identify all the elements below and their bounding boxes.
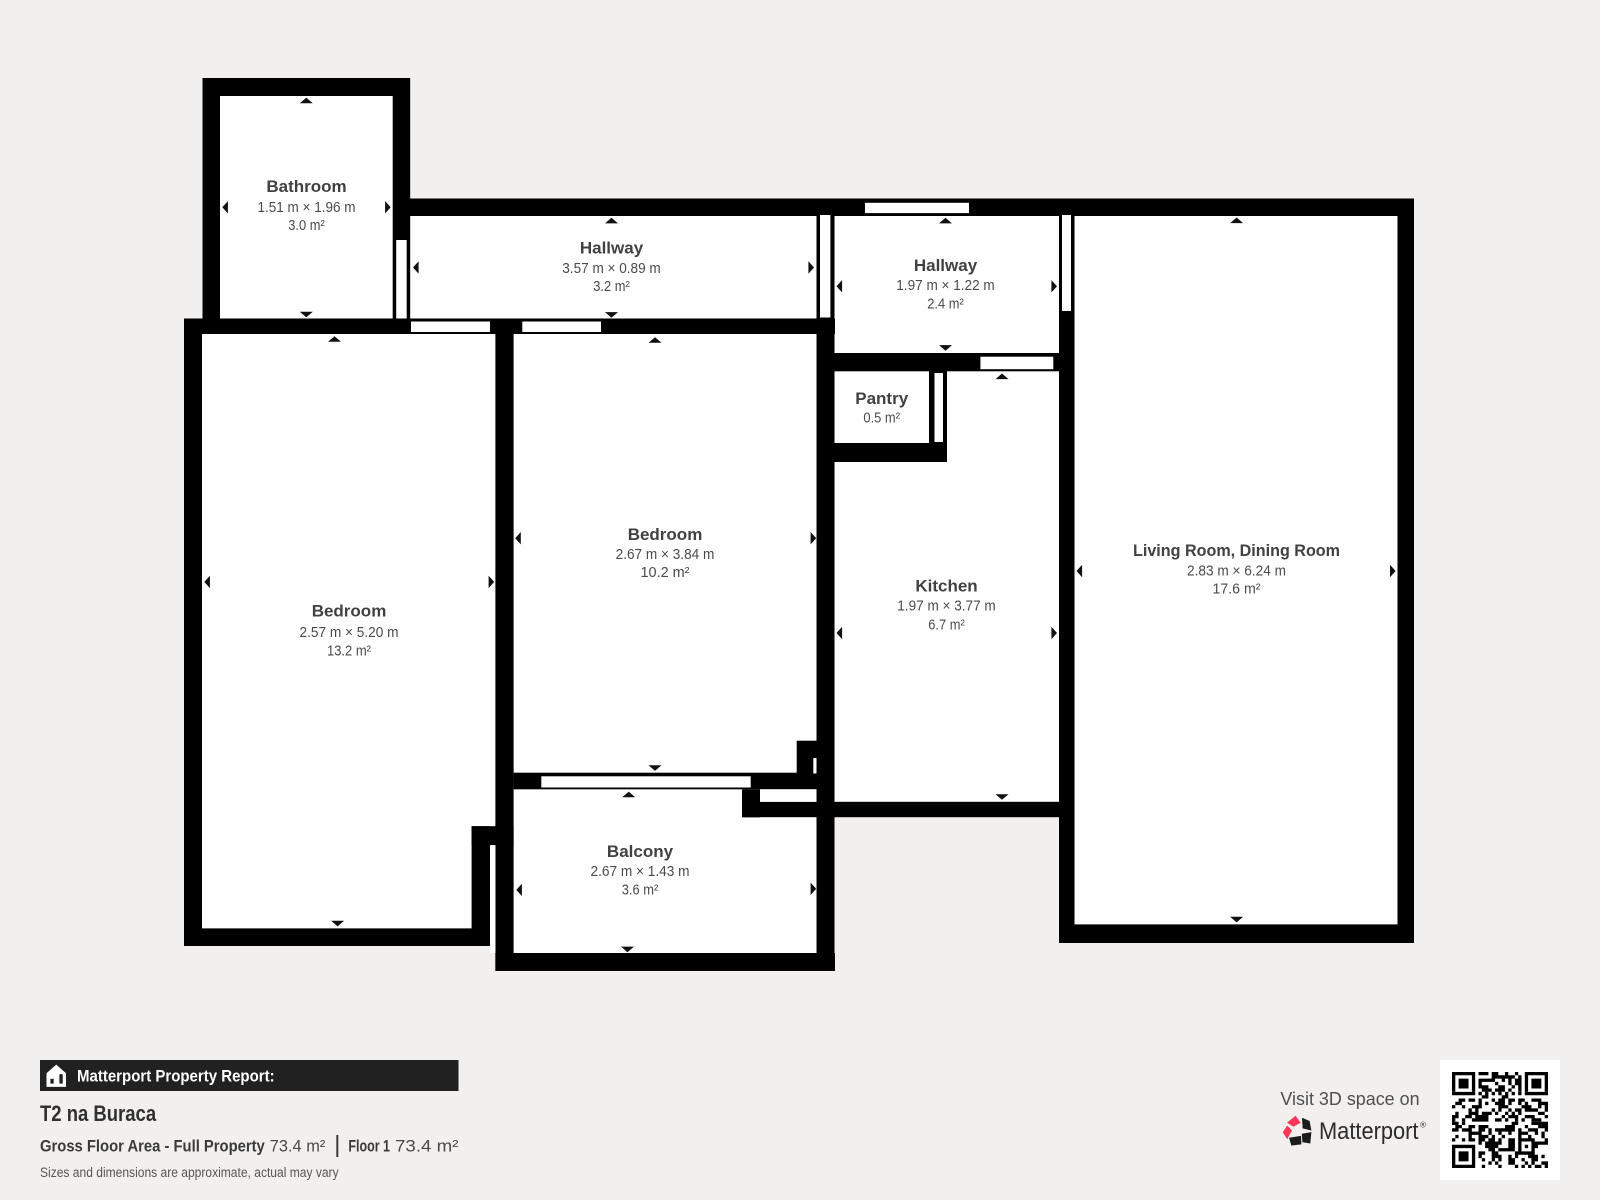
svg-text:2.67 m × 3.84 m: 2.67 m × 3.84 m: [616, 547, 715, 563]
svg-text:17.6 m²: 17.6 m²: [1213, 582, 1261, 598]
svg-text:10.2 m²: 10.2 m²: [641, 565, 690, 581]
svg-text:3.6 m²: 3.6 m²: [622, 883, 659, 899]
svg-text:Bathroom: Bathroom: [266, 177, 346, 196]
svg-text:73.4 m²: 73.4 m²: [395, 1137, 459, 1156]
svg-text:Visit 3D space on: Visit 3D space on: [1280, 1088, 1419, 1109]
svg-text:Floor 1: Floor 1: [348, 1137, 390, 1156]
svg-text:®: ®: [1420, 1121, 1426, 1130]
svg-text:Hallway: Hallway: [914, 256, 978, 275]
svg-text:3.0 m²: 3.0 m²: [288, 218, 325, 234]
svg-text:Matterport: Matterport: [1319, 1118, 1419, 1145]
svg-text:Bedroom: Bedroom: [628, 525, 703, 544]
svg-text:Pantry: Pantry: [855, 389, 908, 408]
svg-text:2.4 m²: 2.4 m²: [927, 296, 964, 312]
svg-text:6.7 m²: 6.7 m²: [928, 617, 965, 633]
svg-text:2.67 m × 1.43 m: 2.67 m × 1.43 m: [591, 864, 690, 880]
svg-text:2.83 m × 6.24 m: 2.83 m × 6.24 m: [1187, 564, 1286, 580]
svg-text:0.5 m²: 0.5 m²: [863, 410, 900, 426]
svg-text:Living Room, Dining Room: Living Room, Dining Room: [1133, 541, 1340, 560]
svg-text:Bedroom: Bedroom: [312, 602, 387, 621]
svg-text:Kitchen: Kitchen: [915, 576, 977, 595]
svg-text:T2 na Buraca: T2 na Buraca: [40, 1101, 157, 1126]
svg-text:1.97 m × 3.77 m: 1.97 m × 3.77 m: [897, 599, 996, 615]
svg-text:3.2 m²: 3.2 m²: [593, 279, 630, 295]
svg-text:73.4 m²: 73.4 m²: [270, 1137, 326, 1156]
svg-text:Matterport Property Report:: Matterport Property Report:: [77, 1066, 275, 1085]
svg-text:1.51 m × 1.96 m: 1.51 m × 1.96 m: [258, 200, 356, 216]
svg-text:Balcony: Balcony: [607, 842, 674, 861]
svg-text:Sizes and dimensions are appro: Sizes and dimensions are approximate, ac…: [40, 1165, 339, 1180]
svg-text:1.97 m × 1.22 m: 1.97 m × 1.22 m: [896, 278, 995, 294]
svg-text:2.57 m × 5.20 m: 2.57 m × 5.20 m: [300, 625, 399, 641]
svg-text:3.57 m × 0.89 m: 3.57 m × 0.89 m: [562, 261, 661, 277]
svg-text:13.2 m²: 13.2 m²: [327, 643, 371, 659]
svg-text:Hallway: Hallway: [580, 239, 644, 258]
svg-text:Gross Floor Area - Full Proper: Gross Floor Area - Full Property: [40, 1137, 265, 1156]
